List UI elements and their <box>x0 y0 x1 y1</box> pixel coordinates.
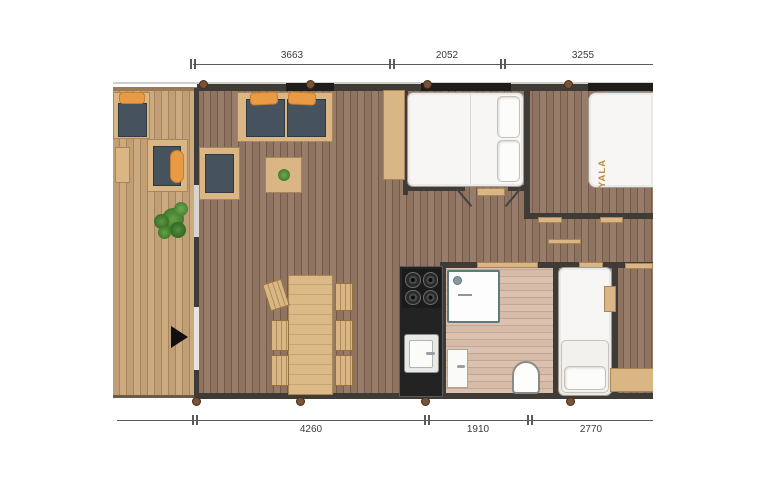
pole-knob <box>566 397 575 406</box>
door-threshold-bathroom <box>477 262 538 268</box>
dim-tick <box>191 415 199 425</box>
dining-chair-3 <box>271 355 289 386</box>
dim-tick <box>189 59 197 69</box>
bedroom1-duvet-fold <box>470 94 471 184</box>
burner-icon <box>405 272 421 288</box>
pole-knob <box>192 397 201 406</box>
pole-knob <box>296 397 305 406</box>
outdoor-side-table <box>115 147 130 183</box>
bedroom1-pillow-top <box>497 96 520 138</box>
dining-table <box>288 275 333 395</box>
dim-tick <box>388 59 396 69</box>
bedroom1-bench <box>477 188 505 196</box>
shower-arm <box>458 294 472 296</box>
sofa-pillow-right <box>288 91 317 105</box>
dining-chair-6 <box>335 355 353 386</box>
dim-label-bottom-2: 1910 <box>467 424 489 435</box>
burner-icon <box>405 290 421 306</box>
entrance-arrow-icon <box>171 326 188 348</box>
dining-chair-5 <box>335 320 353 351</box>
armchair-cushion <box>205 154 234 193</box>
dim-tick <box>526 415 534 425</box>
pole-knob <box>306 80 315 89</box>
deck-bottom-edge <box>113 395 199 398</box>
shower-head-icon <box>453 276 462 285</box>
dim-label-bottom-3: 2770 <box>580 424 602 435</box>
wall-bedroom2-left <box>524 88 530 218</box>
entrance-door-opening <box>194 307 199 370</box>
dim-tick <box>499 59 507 69</box>
window-bedroom2-top <box>588 83 653 91</box>
sink-faucet-icon <box>426 352 435 355</box>
stove-burners <box>402 269 441 308</box>
pole-knob <box>423 80 432 89</box>
coffee-table-plant-icon <box>278 169 290 181</box>
pole-knob <box>564 80 573 89</box>
basin-faucet-icon <box>457 365 465 368</box>
dim-label-top-2: 2052 <box>436 50 458 61</box>
pole-knob <box>421 397 430 406</box>
dim-label-bottom-1: 4260 <box>300 424 322 435</box>
floor-plan-canvas: YALA 3663 2052 3255 4260 191 <box>0 0 769 500</box>
burner-icon <box>423 272 439 288</box>
door-threshold-right <box>625 263 653 269</box>
dim-label-top-3: 3255 <box>572 50 594 61</box>
dim-label-top-1: 3663 <box>281 50 303 61</box>
corridor-step <box>548 239 581 244</box>
bedside-shelf <box>604 286 616 312</box>
dining-chair-2 <box>271 320 289 351</box>
wardrobe <box>383 90 405 180</box>
dimension-line-top <box>193 64 653 65</box>
deck-plant-icon <box>152 200 192 242</box>
dim-tick <box>423 415 431 425</box>
pole-knob <box>199 80 208 89</box>
kitchen-sink <box>404 334 439 373</box>
outdoor-sofa-pillow <box>119 92 145 104</box>
door-threshold-bedroom2-a <box>538 217 562 223</box>
deck-top-edge <box>113 87 197 91</box>
outdoor-armchair-pillow <box>170 150 184 183</box>
dining-chair-4 <box>335 283 353 311</box>
window-bedroom1-top <box>421 83 511 91</box>
outdoor-sofa-cushion <box>118 103 147 137</box>
bedroom1-pillow-bottom <box>497 140 520 182</box>
bed-brand-label: YALA <box>597 146 613 188</box>
wall-corridor-bottom <box>440 262 653 268</box>
toilet <box>512 361 540 394</box>
sofa-pillow-left <box>250 91 279 105</box>
bottom-right-bench <box>610 368 653 392</box>
washbasin <box>447 349 468 388</box>
burner-icon <box>423 290 439 306</box>
bedroom3-duvet-fold <box>564 366 606 390</box>
shower <box>447 270 500 323</box>
door-threshold-bedroom2-b <box>600 217 623 223</box>
